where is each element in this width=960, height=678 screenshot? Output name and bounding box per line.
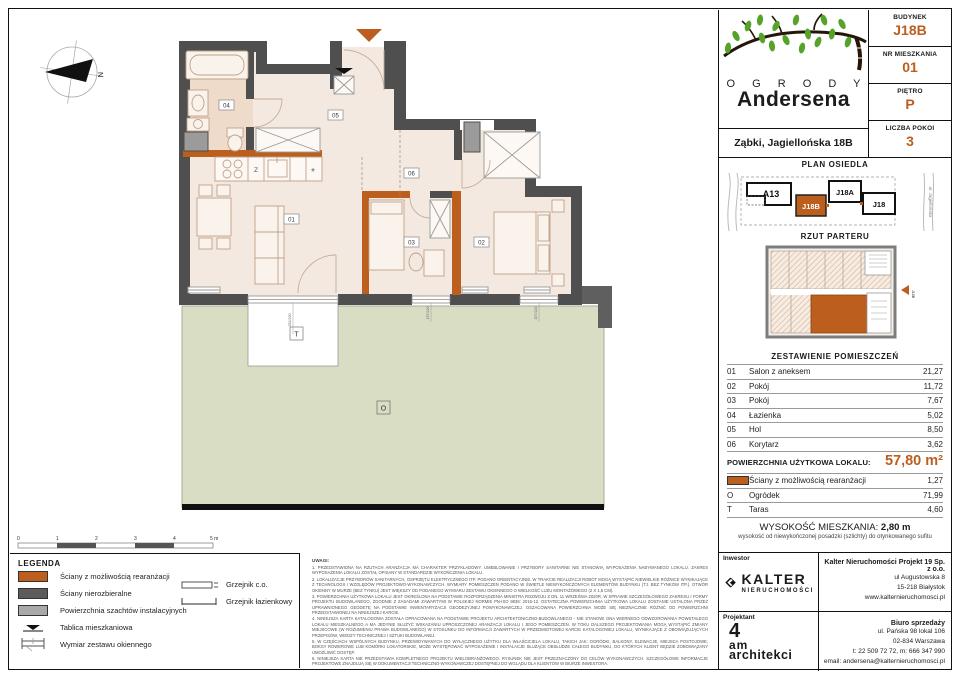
unit-marker-label: J18B <box>911 290 915 299</box>
sink-label: Z <box>254 167 258 174</box>
note-item: 5. W CZĘŚCIACH WSPÓLNYCH BUDYNKU, PRZEWI… <box>312 639 708 655</box>
usable-area-value: 57,80 m² <box>885 453 943 469</box>
spec-apartment-number: NR MIESZKANIA 01 <box>869 47 951 84</box>
room-label-01: 01 <box>288 218 295 224</box>
spec-building: BUDYNEK J18B <box>869 10 951 47</box>
note-item: 4. NINIEJSZA KARTA KATALOGOWA ZOSTAŁA OP… <box>312 616 708 638</box>
garden-label: O <box>377 401 390 414</box>
svg-text:1: 1 <box>56 536 59 542</box>
table-row-walls: Ściany z możliwością rearanżacji1,27 <box>727 474 943 489</box>
note-item: 2. LOKALIZACJE PRZYBORÓW SANITARNYCH, OS… <box>312 577 708 593</box>
building-j18b: J18B <box>802 202 821 211</box>
svg-text:157/220: 157/220 <box>534 307 538 320</box>
note-item: 1. PRZEDSTAWIONA NA RZUTACH ARANŻACJA MA… <box>312 565 708 576</box>
walls-rearrangeable-swatch <box>727 476 749 485</box>
extra-areas: Ściany z możliwością rearanżacji1,27 O O… <box>727 473 943 518</box>
walls-fixed-swatch <box>18 588 48 599</box>
kalter-logo: KALTER NIERUCHOMOŚCI <box>725 569 814 597</box>
legend-panel: LEGENDA Ściany z możliwością rearanżacji… <box>10 553 300 668</box>
sales-email: email: andersena@kalternieruchomosci.pl <box>823 657 945 667</box>
legend-title: LEGENDA <box>18 559 299 568</box>
table-row-terrace: T Taras4,60 <box>727 503 943 518</box>
project-address: Ząbki, Jagiellońska 18B <box>719 128 869 158</box>
sales-phone: t: 22 509 72 72, m: 666 347 990 <box>823 647 945 657</box>
kalter-diamond-icon <box>725 569 738 597</box>
board-icon <box>18 622 48 634</box>
rooms-table-title: ZESTAWIENIE POMIESZCZEŃ <box>719 352 951 361</box>
fridge-symbol: * <box>311 167 315 178</box>
catalog-sheet: T O <box>0 0 960 678</box>
svg-text:O: O <box>381 406 387 413</box>
brand-name-bottom: Andersena <box>719 88 868 112</box>
legend-item-board: Tablica mieszkaniowa <box>18 619 299 636</box>
radiator-co-icon <box>180 579 222 591</box>
legend-right-column: Grzejnik c.o. Grzejnik łazienkowy <box>180 576 292 610</box>
company-cell: Kalter Nieruchomości Projekt 19 Sp. z o.… <box>819 553 951 612</box>
svg-text:0: 0 <box>17 536 20 542</box>
legend-item-radiator: Grzejnik c.o. <box>180 576 292 593</box>
usable-area-total: POWIERZCHNIA UŻYTKOWA LOKALU: 57,80 m² <box>727 453 943 473</box>
unit-marker-arrow <box>901 285 909 295</box>
sales-office-cell: Biuro sprzedaży ul. Pańska 98 lokal 106 … <box>819 612 951 671</box>
legend-item-radiator-bath: Grzejnik łazienkowy <box>180 593 292 610</box>
designer-logo: 4 am architekci <box>729 623 814 661</box>
apartment-specs: BUDYNEK J18B NR MIESZKANIA 01 PIĘTRO P L… <box>869 10 951 158</box>
site-plan-title: PLAN OSIEDLA <box>719 160 951 169</box>
height-value: 2,80 m <box>881 522 911 533</box>
building-a13: A13 <box>763 189 780 199</box>
info-panel: O G R O D Y Andersena Ząbki, Jagiellońsk… <box>718 10 950 670</box>
rooms-table: 01Salon z aneksem21,27 02Pokój11,72 03Po… <box>727 364 943 518</box>
window-dim-icon <box>18 637 48 653</box>
title-block: Inwestor KALTER NIERUCHOMOŚCI Kalter Nie… <box>719 552 951 670</box>
kitchen: Z * <box>215 157 322 181</box>
investor-cell: Inwestor KALTER NIERUCHOMOŚCI <box>719 553 819 612</box>
company-website: www.kalternieruchomosci.pl <box>823 593 945 603</box>
garden-area <box>182 286 612 510</box>
room-label-06: 06 <box>408 172 415 178</box>
floor-plan: T O <box>10 10 718 553</box>
entrance-marker-icon <box>356 29 382 42</box>
compass-icon: N <box>36 36 108 108</box>
building-j18a: J18A <box>836 188 855 197</box>
north-label: N <box>96 72 105 77</box>
room-label-02: 02 <box>478 241 485 247</box>
table-row: 01Salon z aneksem21,27 <box>727 365 943 380</box>
notes-title: UWAGI: <box>312 558 708 563</box>
spec-floor: PIĘTRO P <box>869 84 951 121</box>
brand-logo: O G R O D Y Andersena <box>719 10 869 128</box>
room-label-03: 03 <box>408 241 415 247</box>
svg-text:157/220: 157/220 <box>426 307 430 320</box>
floor-overview-map: J18B <box>719 243 951 345</box>
table-row-garden: O Ogródek71,99 <box>727 489 943 504</box>
svg-text:2: 2 <box>95 536 98 542</box>
apartment-height-note: WYSOKOŚĆ MIESZKANIA: 2,80 m wysokość od … <box>719 522 951 540</box>
shafts-swatch <box>18 605 48 616</box>
site-plan-map: ul. Jagiellońska A13 J18B J18A J18 <box>719 171 951 233</box>
note-item: 6. NINIEJSZA KARTA NIE PRZEDSTAWIA KOMPL… <box>312 656 708 667</box>
walls-rearrangeable-swatch <box>18 571 48 582</box>
table-row: 03Pokój7,67 <box>727 394 943 409</box>
svg-text:252/230: 252/230 <box>288 314 292 327</box>
room-label-04: 04 <box>223 104 230 110</box>
designer-cell: Projektant 4 am architekci <box>719 612 819 671</box>
table-row: 04Łazienka5,02 <box>727 409 943 424</box>
building-j18: J18 <box>873 200 886 209</box>
terrace-label: T <box>294 332 299 339</box>
svg-text:4: 4 <box>173 536 176 542</box>
room-label-05: 05 <box>332 114 339 120</box>
scale-bar: 0 1 2 3 4 5 m <box>17 536 218 548</box>
spec-room-count: LICZBA POKOI 3 <box>869 121 951 158</box>
svg-text:5 m: 5 m <box>210 536 218 542</box>
legend-item-window-dim: Wymiar zestawu okiennego <box>18 636 299 653</box>
table-row: 02Pokój11,72 <box>727 380 943 395</box>
note-item: 3. POWIERZCHNIA UŻYTKOWA LOKALU JEST OKR… <box>312 594 708 616</box>
radiator-bath-icon <box>180 596 222 608</box>
tree-branch-icon <box>720 10 868 72</box>
street-label: ul. Jagiellońska <box>928 187 933 218</box>
table-row: 06Korytarz3,62 <box>727 438 943 453</box>
svg-text:3: 3 <box>134 536 137 542</box>
floor-overview-title: RZUT PARTERU <box>719 232 951 241</box>
table-row: 05Hol8,50 <box>727 423 943 438</box>
notes-panel: UWAGI: 1. PRZEDSTAWIONA NA RZUTACH ARANŻ… <box>300 553 718 668</box>
